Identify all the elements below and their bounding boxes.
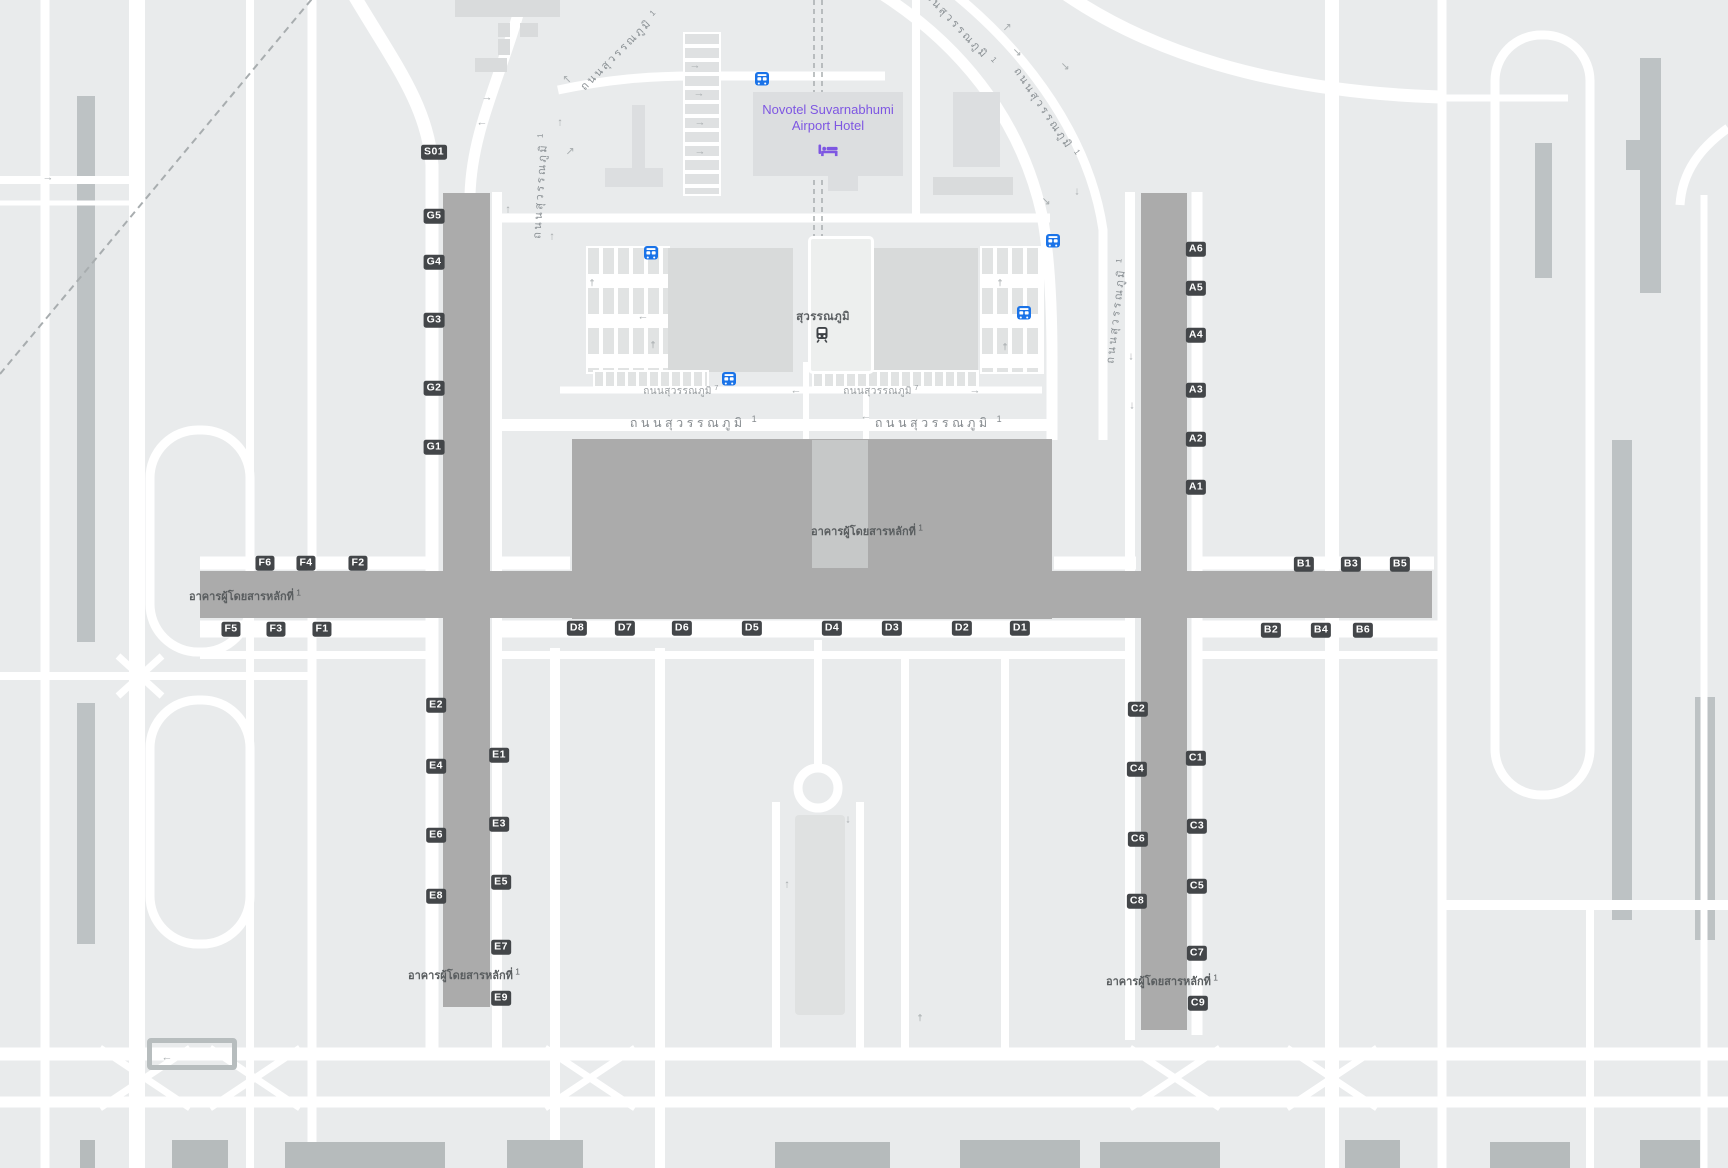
terminal-label: อาคารผู้โดยสารหลักที่ 1 bbox=[189, 587, 301, 605]
gate-badge-c9: C9 bbox=[1188, 996, 1208, 1011]
gate-badge-d7: D7 bbox=[615, 621, 635, 636]
gate-badge-e8: E8 bbox=[426, 889, 446, 904]
road-name-label: ถนนสุวรรณภูมิ 1 bbox=[1009, 63, 1084, 162]
gate-badge-c2: C2 bbox=[1128, 702, 1148, 717]
bus-stop-icon[interactable] bbox=[721, 372, 737, 393]
one-way-arrow-icon: ← bbox=[477, 118, 488, 129]
bus-stop-icon[interactable] bbox=[643, 246, 659, 267]
gate-badge-e7: E7 bbox=[491, 940, 511, 955]
gate-badge-e3: E3 bbox=[489, 817, 509, 832]
gate-badge-c7: C7 bbox=[1187, 946, 1207, 961]
road-name-label: ถนนสุวรรณภูมิ 1 bbox=[527, 131, 552, 240]
bus-stop-icon[interactable] bbox=[1045, 234, 1061, 255]
gate-badge-g2: G2 bbox=[424, 381, 445, 396]
gate-badge-a4: A4 bbox=[1186, 328, 1206, 343]
road-name-label: ถนนสุวรรณภูมิ 1 bbox=[1101, 255, 1132, 364]
terminal-label: อาคารผู้โดยสารหลักที่ 1 bbox=[408, 966, 520, 984]
cross-marker-icon: † bbox=[917, 1014, 922, 1023]
map-canvas[interactable]: Novotel Suvarnabhumi Airport Hotel สุวรร… bbox=[0, 0, 1728, 1168]
terminal-label: อาคารผู้โดยสารหลักที่ 1 bbox=[811, 522, 923, 540]
one-way-arrow-icon: → bbox=[695, 118, 706, 129]
one-way-arrow-icon: ↘ bbox=[1041, 197, 1050, 208]
gate-badge-d1: D1 bbox=[1010, 621, 1030, 636]
gate-badge-e4: E4 bbox=[426, 759, 446, 774]
one-way-arrow-icon: → bbox=[482, 93, 493, 104]
gate-badge-d6: D6 bbox=[672, 621, 692, 636]
gate-badge-f2: F2 bbox=[348, 556, 367, 571]
gate-badge-c3: C3 bbox=[1187, 819, 1207, 834]
gate-badge-a5: A5 bbox=[1186, 281, 1206, 296]
road-name-label: ถนนสุวรรณภูมิ 7 bbox=[643, 383, 718, 399]
gate-badge-f1: F1 bbox=[312, 622, 331, 637]
bus-stop-icon[interactable] bbox=[754, 72, 770, 93]
gate-badge-d3: D3 bbox=[882, 621, 902, 636]
road-name-label: ถนนสุวรรณภูมิ 1 bbox=[576, 6, 665, 95]
one-way-arrow-icon: ↓ bbox=[1128, 352, 1134, 363]
one-way-arrow-icon: ↓ bbox=[845, 815, 851, 826]
one-way-arrow-icon: ↓ bbox=[1129, 401, 1135, 412]
gate-badge-c4: C4 bbox=[1127, 762, 1147, 777]
gate-badge-e9: E9 bbox=[491, 991, 511, 1006]
gate-badge-b5: B5 bbox=[1390, 557, 1410, 572]
gate-badge-a6: A6 bbox=[1186, 242, 1206, 257]
cross-marker-icon: † bbox=[1002, 343, 1007, 352]
gate-badge-s01: S01 bbox=[421, 145, 447, 160]
gate-badge-g3: G3 bbox=[424, 313, 445, 328]
gate-badge-f3: F3 bbox=[266, 622, 285, 637]
gate-badge-e1: E1 bbox=[489, 748, 509, 763]
one-way-arrow-icon: ↓ bbox=[1074, 187, 1080, 198]
gate-badge-f6: F6 bbox=[255, 556, 274, 571]
gate-badge-f5: F5 bbox=[221, 622, 240, 637]
gate-badge-g4: G4 bbox=[424, 255, 445, 270]
gate-badge-c1: C1 bbox=[1186, 751, 1206, 766]
one-way-arrow-icon: → bbox=[690, 61, 701, 72]
gate-badge-b3: B3 bbox=[1341, 557, 1361, 572]
one-way-arrow-icon: ↘ bbox=[1060, 62, 1069, 73]
one-way-arrow-icon: → bbox=[970, 386, 981, 397]
one-way-arrow-icon: ← bbox=[861, 412, 872, 423]
gate-badge-b1: B1 bbox=[1294, 557, 1314, 572]
gate-badge-g5: G5 bbox=[424, 209, 445, 224]
road-name-label: ถนนสุวรรณภูมิ 1 bbox=[875, 413, 1005, 433]
gate-badge-b4: B4 bbox=[1311, 623, 1331, 638]
one-way-arrow-icon: ↑ bbox=[505, 205, 511, 216]
annotation-layer: S01G5G4G3G2G1A6A5A4A3A2A1F6F4F2F5F3F1D8D… bbox=[0, 0, 1728, 1168]
road-name-label: ถนนสุวรรณภูมิ 7 bbox=[843, 383, 918, 399]
gate-badge-d4: D4 bbox=[822, 621, 842, 636]
gate-badge-c5: C5 bbox=[1187, 879, 1207, 894]
gate-badge-e5: E5 bbox=[491, 875, 511, 890]
gate-badge-c6: C6 bbox=[1128, 832, 1148, 847]
gate-badge-a3: A3 bbox=[1186, 383, 1206, 398]
one-way-arrow-icon: ↗ bbox=[1002, 23, 1011, 34]
one-way-arrow-icon: ↑ bbox=[549, 232, 555, 243]
one-way-arrow-icon: ↑ bbox=[557, 118, 563, 129]
one-way-arrow-icon: ↗ bbox=[565, 147, 574, 158]
gate-badge-g1: G1 bbox=[424, 440, 445, 455]
terminal-label: อาคารผู้โดยสารหลักที่ 1 bbox=[1106, 972, 1218, 990]
cross-marker-icon: † bbox=[589, 279, 594, 288]
gate-badge-d2: D2 bbox=[952, 621, 972, 636]
one-way-arrow-icon: ← bbox=[791, 386, 802, 397]
one-way-arrow-icon: ↘ bbox=[1012, 48, 1021, 59]
one-way-arrow-icon: ↑ bbox=[784, 880, 790, 891]
gate-badge-b2: B2 bbox=[1261, 623, 1281, 638]
road-name-label: ถนนสุวรรณภูมิ 1 bbox=[630, 413, 760, 433]
cross-marker-icon: † bbox=[997, 279, 1002, 288]
gate-badge-d8: D8 bbox=[567, 621, 587, 636]
one-way-arrow-icon: → bbox=[695, 147, 706, 158]
road-name-label: ถนนสุวรรณภูมิ 1 bbox=[915, 0, 1002, 72]
gate-badge-c8: C8 bbox=[1127, 894, 1147, 909]
gate-badge-f4: F4 bbox=[296, 556, 315, 571]
gate-badge-e6: E6 bbox=[426, 828, 446, 843]
gate-badge-e2: E2 bbox=[426, 698, 446, 713]
gate-badge-b6: B6 bbox=[1353, 623, 1373, 638]
one-way-arrow-icon: ↖ bbox=[562, 75, 571, 86]
one-way-arrow-icon: ← bbox=[638, 312, 649, 323]
gate-badge-a2: A2 bbox=[1186, 432, 1206, 447]
cross-marker-icon: † bbox=[650, 341, 655, 350]
gate-badge-d5: D5 bbox=[742, 621, 762, 636]
one-way-arrow-icon: ← bbox=[162, 1053, 173, 1064]
gate-badge-a1: A1 bbox=[1186, 480, 1206, 495]
one-way-arrow-icon: → bbox=[43, 173, 54, 184]
bus-stop-icon[interactable] bbox=[1016, 306, 1032, 327]
one-way-arrow-icon: → bbox=[694, 89, 705, 100]
